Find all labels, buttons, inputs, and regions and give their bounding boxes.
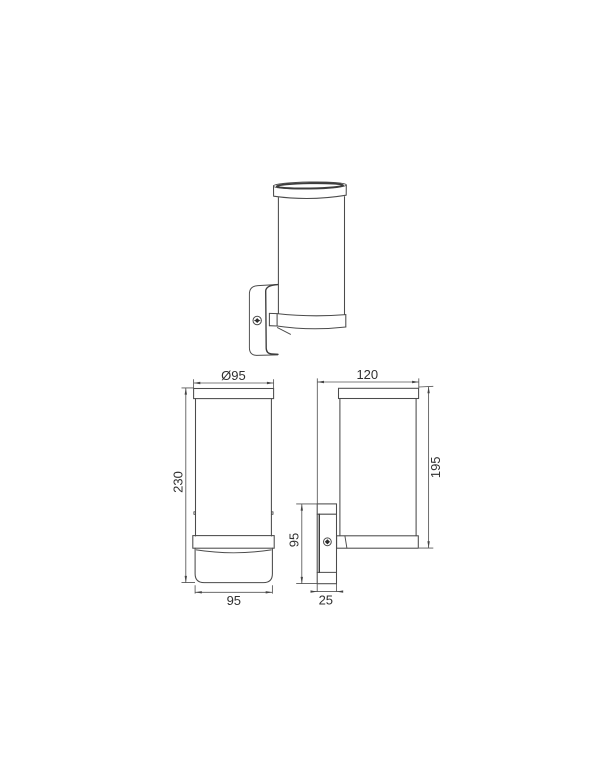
svg-text:95: 95	[286, 533, 301, 547]
svg-text:195: 195	[428, 456, 443, 478]
svg-text:120: 120	[356, 367, 378, 382]
svg-text:Ø95: Ø95	[221, 368, 246, 383]
svg-text:95: 95	[227, 593, 241, 608]
svg-text:230: 230	[171, 471, 186, 493]
svg-text:25: 25	[319, 592, 333, 607]
